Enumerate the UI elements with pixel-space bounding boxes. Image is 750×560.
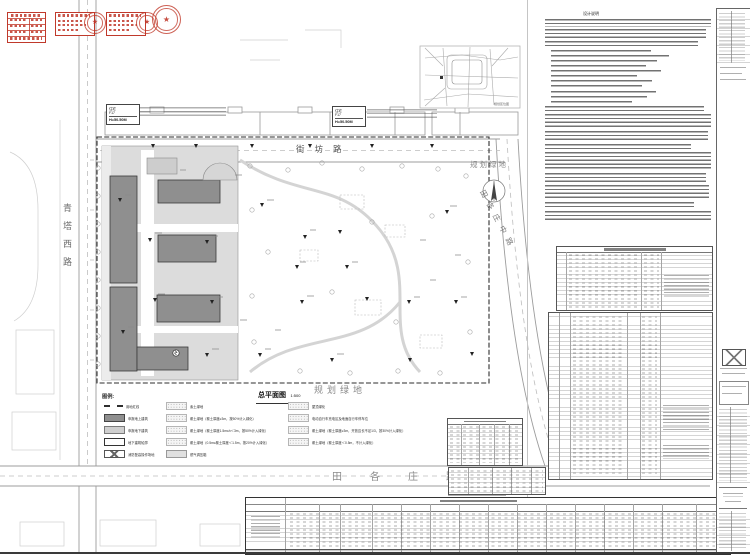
road-label-jiefang: 街坊路	[296, 143, 352, 155]
legend-label: 消防登高操作场地	[128, 452, 154, 457]
notes-heading: 设计说明	[583, 11, 599, 17]
building-6	[137, 347, 188, 370]
small-indicator-table-1	[447, 418, 523, 466]
legend-label: 覆土绿地（覆土厚度≥3m，按50%计入绿化）	[190, 416, 256, 421]
technical-economic-table	[548, 312, 713, 480]
land-indicator-table	[556, 246, 713, 311]
tag-left-notes	[140, 107, 226, 118]
legend-swatch-gas-box	[166, 450, 187, 459]
legend-label: 覆土绿地（覆土厚度≥3m，开放边长不足1/3，按30%计入绿化）	[312, 428, 405, 433]
building-tag-left: 住宅 F17 H=50.50M	[106, 104, 140, 125]
building-1	[110, 176, 137, 283]
design-firm-logo	[722, 349, 746, 366]
approval-stamp-1	[7, 12, 46, 43]
legend-label: 燃气调压箱	[190, 452, 206, 457]
round-seal-icon: ★	[84, 12, 106, 34]
green-design-seal-icon: ★	[152, 5, 181, 34]
legend-label: 用地红线	[126, 404, 139, 409]
building-4	[158, 235, 216, 262]
legend-label: 素土绿地	[190, 404, 203, 409]
building-3	[158, 180, 220, 203]
legend-swatch-green	[166, 438, 187, 447]
tag-floors: F17	[335, 113, 363, 117]
legend-swatch-below-ground	[104, 426, 125, 435]
legend-label: 申报地下建筑	[128, 428, 148, 433]
tag-right-notes	[367, 109, 437, 120]
tag-floors: F17	[109, 111, 137, 115]
project-name-box	[719, 381, 749, 405]
building-5	[157, 295, 220, 322]
legend-label: 申报地上建筑	[128, 416, 148, 421]
legend-panel: 图例: 用地红线 申报地上建筑 申报地下建筑 地下建筑轮廓 消防登高操作场地 素…	[100, 390, 438, 462]
small-indicator-table-2	[448, 467, 546, 495]
drawing-sheet: 青塔西路 街坊路 田各庄路 田各庄中路 规划绿地 规划绿地 规划区位图 住宅 F…	[0, 0, 750, 560]
legend-label: 覆土绿地（覆土厚度1.5m≤h＜3m，按50%计入绿化）	[190, 428, 268, 433]
building-tag-right: 住宅 F17 H=50.50M	[332, 106, 366, 127]
legend-label: 电动自行车充电区及地面自行车停车位	[312, 416, 368, 421]
tag-height: H=50.50M	[335, 118, 363, 124]
inset-map-label: 规划区位图	[494, 102, 509, 106]
legend-label: 屋顶绿化	[312, 404, 325, 409]
legend-swatch-green	[288, 438, 309, 447]
legend-label: 覆土绿地（覆土厚度＜0.5m，不计入绿化）	[312, 440, 375, 445]
podium-structure	[147, 158, 177, 174]
legend-swatch-boundary	[104, 405, 123, 407]
location-inset-map	[420, 46, 520, 108]
legend-swatch-fire-area	[104, 450, 125, 459]
legend-swatch-roof-green	[288, 402, 309, 411]
legend-swatch-green	[166, 426, 187, 435]
legend-swatch-above-ground	[104, 414, 125, 423]
drawing-name-box	[719, 487, 747, 509]
design-notes-text	[545, 19, 711, 223]
legend-label: 地下建筑轮廓	[128, 440, 148, 445]
legend-title: 图例:	[102, 393, 114, 400]
legend-swatch-green	[166, 414, 187, 423]
building-2	[110, 287, 137, 371]
sheet-bottom-border	[0, 552, 750, 554]
legend-swatch-underground-outline	[104, 438, 125, 447]
green-area-label-east: 规划绿地	[470, 159, 508, 170]
drawing-title-block	[716, 8, 750, 554]
internal-road	[141, 150, 154, 376]
gas-regulator-icon	[173, 350, 179, 356]
road-label-qingta-west: 青塔西路	[61, 203, 74, 275]
legend-swatch-green	[288, 426, 309, 435]
legend-label: 覆土绿地（0.5m≤覆土厚度＜1.5m，按20%计入绿化）	[190, 440, 269, 445]
legend-swatch-bike-parking	[288, 414, 309, 423]
site-location-marker	[440, 76, 443, 79]
tag-height: H=50.50M	[109, 116, 137, 122]
green-paths	[240, 160, 420, 372]
building-area-summary-table	[245, 497, 731, 555]
legend-swatch-green	[166, 402, 187, 411]
